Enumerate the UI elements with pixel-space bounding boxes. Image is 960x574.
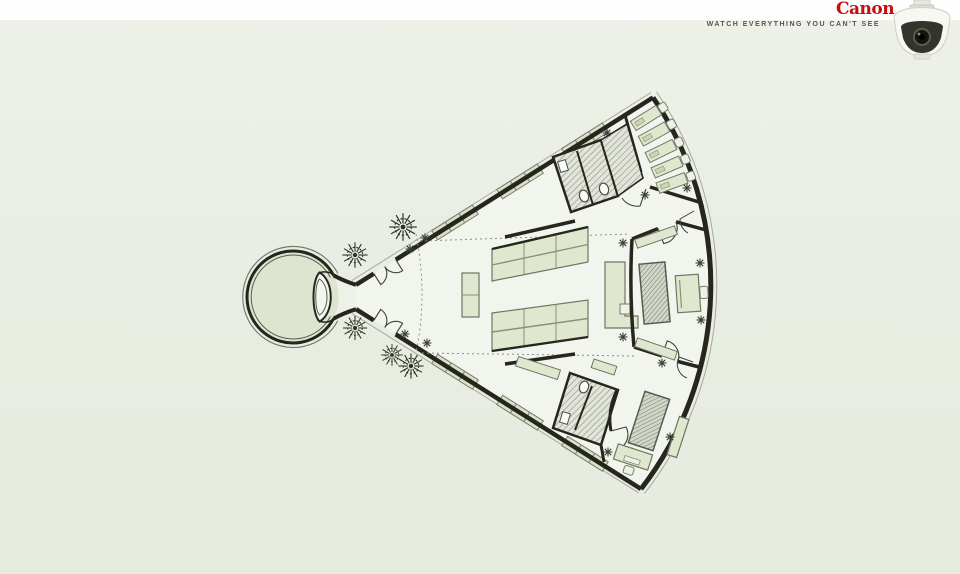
plant-icon bbox=[658, 359, 667, 368]
floorplan-graphic bbox=[0, 0, 960, 574]
plant-icon bbox=[423, 339, 432, 348]
plant-icon bbox=[401, 330, 410, 339]
tree-icon bbox=[342, 242, 367, 267]
ad-canvas: Canon WATCH EVERYTHING YOU CAN'T SEE bbox=[0, 0, 960, 574]
plant-icon bbox=[603, 129, 612, 138]
eye-plaza bbox=[243, 246, 356, 347]
plant-icon bbox=[604, 448, 613, 457]
meeting-rug bbox=[639, 262, 670, 324]
plant-icon bbox=[619, 239, 628, 248]
plant-icon bbox=[619, 333, 628, 342]
plant-icon bbox=[406, 245, 415, 254]
tree-icon bbox=[398, 353, 423, 378]
plant-icon bbox=[683, 184, 692, 193]
plant-icon bbox=[697, 316, 706, 325]
plant-icon bbox=[696, 259, 705, 268]
plant-icon bbox=[641, 191, 650, 200]
side-table bbox=[620, 304, 630, 314]
plant-icon bbox=[421, 234, 430, 243]
plant-icon bbox=[666, 433, 675, 442]
meeting-chair bbox=[700, 286, 709, 299]
tree-icon bbox=[381, 344, 403, 366]
tree-icon bbox=[389, 213, 417, 241]
tree-icon bbox=[343, 316, 367, 340]
meeting-desk bbox=[675, 274, 701, 313]
